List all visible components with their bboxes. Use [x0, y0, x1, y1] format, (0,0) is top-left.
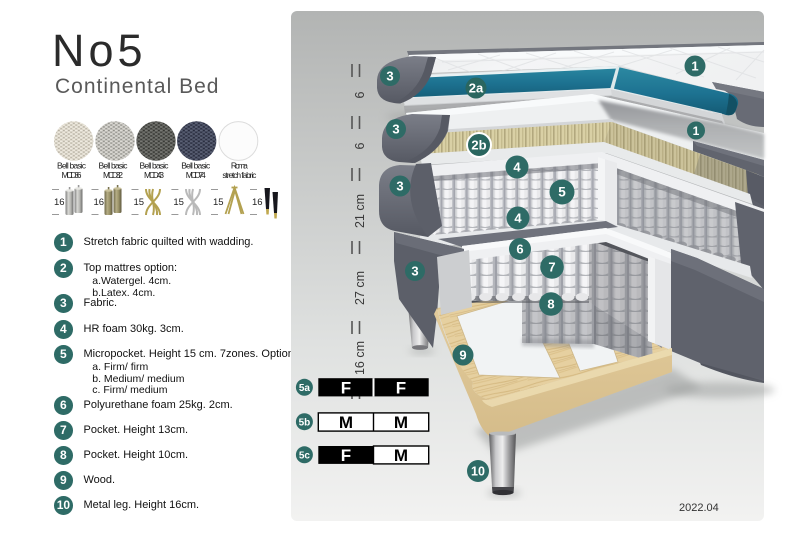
svg-text:4: 4 [514, 211, 522, 226]
svg-text:2b: 2b [471, 138, 486, 153]
svg-text:1: 1 [691, 59, 698, 74]
svg-text:F: F [341, 379, 351, 398]
svg-text:F: F [341, 446, 351, 465]
svg-text:5: 5 [558, 185, 566, 200]
svg-text:M: M [394, 413, 408, 432]
svg-text:3: 3 [411, 264, 418, 279]
svg-text:6: 6 [353, 91, 367, 98]
svg-text:1: 1 [693, 124, 700, 138]
svg-text:4: 4 [513, 160, 521, 175]
svg-text:3: 3 [392, 122, 399, 137]
svg-text:M: M [394, 446, 408, 465]
svg-text:5c: 5c [299, 451, 311, 462]
svg-text:M: M [339, 413, 353, 432]
svg-text:2a: 2a [469, 81, 484, 96]
svg-text:5b: 5b [299, 417, 311, 428]
svg-text:9: 9 [459, 348, 466, 363]
svg-text:27 cm: 27 cm [353, 271, 367, 305]
svg-text:8: 8 [547, 297, 554, 312]
svg-text:F: F [396, 379, 406, 398]
svg-text:6: 6 [353, 142, 367, 149]
svg-text:2022.04: 2022.04 [679, 502, 719, 514]
svg-text:10: 10 [471, 465, 485, 479]
svg-text:6: 6 [516, 242, 523, 257]
svg-text:16 cm: 16 cm [353, 341, 367, 375]
svg-text:7: 7 [548, 260, 555, 275]
svg-text:5a: 5a [299, 383, 311, 394]
svg-text:3: 3 [396, 179, 403, 194]
svg-text:3: 3 [386, 69, 393, 84]
svg-text:21 cm: 21 cm [353, 194, 367, 228]
